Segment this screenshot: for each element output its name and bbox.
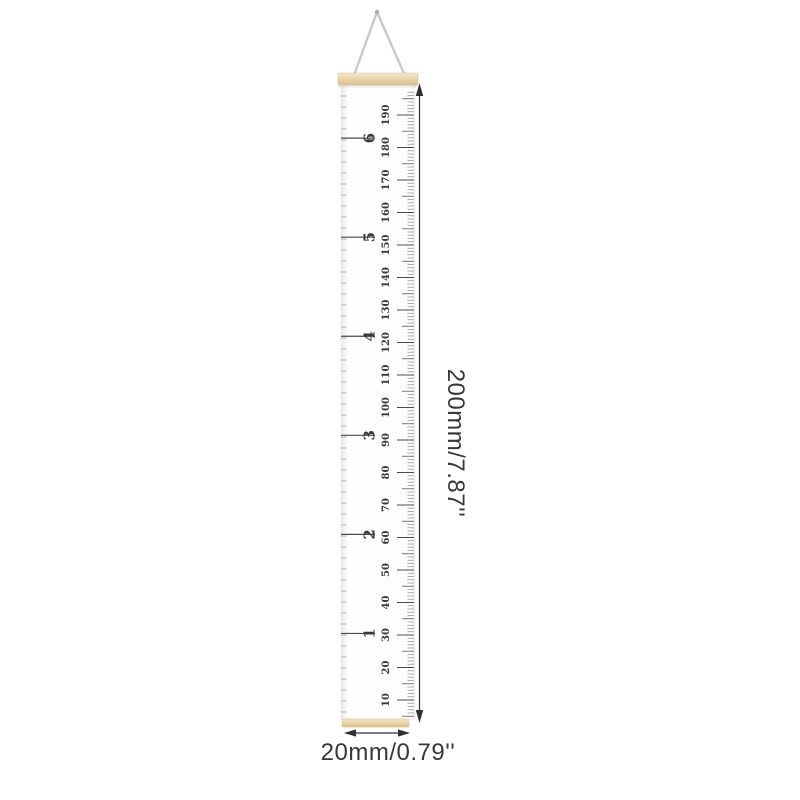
product-scene: 1020304050607080901001101201301401501601… bbox=[0, 0, 800, 800]
scale-number: 30 bbox=[381, 628, 392, 642]
foot-number: 6 bbox=[361, 133, 379, 143]
hanging-string-left bbox=[353, 12, 377, 78]
foot-number: 2 bbox=[361, 529, 379, 539]
ruler-canvas bbox=[341, 84, 415, 719]
scale-number: 80 bbox=[381, 466, 392, 480]
bottom-wood-bar bbox=[342, 719, 409, 727]
top-wood-bar bbox=[338, 73, 418, 85]
growth-chart-ruler-art: 1020304050607080901001101201301401501601… bbox=[0, 0, 800, 800]
scale-number: 150 bbox=[381, 235, 392, 256]
foot-number: 3 bbox=[361, 430, 379, 440]
scale-number: 10 bbox=[381, 693, 392, 707]
string-knot bbox=[375, 10, 379, 14]
height-dimension-label: 200mm/7.87'' bbox=[441, 369, 469, 518]
scale-number: 90 bbox=[381, 433, 392, 447]
foot-number: 5 bbox=[361, 232, 379, 242]
height-arrowhead-down bbox=[416, 710, 423, 723]
scale-number: 100 bbox=[381, 397, 392, 418]
scale-number: 190 bbox=[381, 105, 392, 126]
scale-number: 60 bbox=[381, 531, 392, 545]
hanging-string-right bbox=[377, 12, 406, 78]
scale-number: 50 bbox=[381, 563, 392, 577]
foot-number: 4 bbox=[361, 331, 379, 341]
ruler-canvas-right-shade bbox=[411, 84, 415, 719]
scale-number: 120 bbox=[381, 332, 392, 353]
foot-number: 1 bbox=[361, 628, 379, 638]
scale-number: 20 bbox=[381, 661, 392, 675]
width-dimension-label: 20mm/0.79'' bbox=[321, 739, 456, 767]
scale-number: 170 bbox=[381, 170, 392, 191]
scale-number: 140 bbox=[381, 267, 392, 288]
scale-number: 40 bbox=[381, 596, 392, 610]
scale-number: 70 bbox=[381, 498, 392, 512]
width-arrowhead-right bbox=[398, 729, 410, 736]
top-bar-shadow bbox=[338, 85, 418, 88]
scale-number: 110 bbox=[381, 365, 392, 386]
scale-number: 130 bbox=[381, 300, 392, 321]
scale-number: 180 bbox=[381, 137, 392, 158]
width-arrowhead-left bbox=[344, 729, 356, 736]
scale-number: 160 bbox=[381, 202, 392, 223]
